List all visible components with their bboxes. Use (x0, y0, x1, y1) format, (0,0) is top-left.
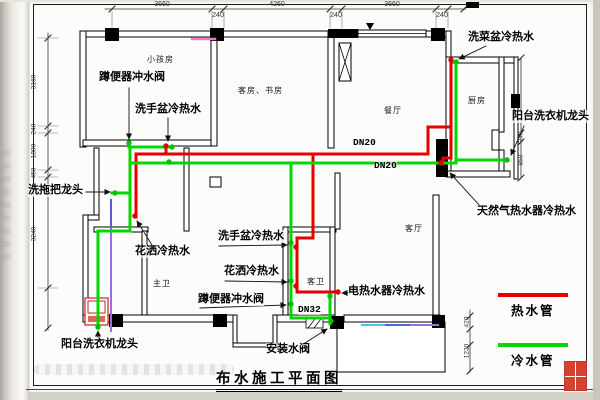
pipe-size-label: DN20 (353, 138, 376, 148)
fixture-label: 洗手盆冷热水 (135, 103, 201, 116)
hot-connection-dot (293, 283, 298, 288)
seal-cell (565, 377, 575, 391)
fixture-label: 洗菜盆冷热水 (468, 31, 534, 44)
drawing-title: 布水施工平面图 (216, 367, 342, 392)
room-label: 厨房 (468, 96, 486, 105)
wall (184, 148, 189, 231)
cold-connection-dot (504, 157, 509, 162)
cold-pipe-legend-line (498, 343, 568, 347)
fixture-label: 安装水阀 (266, 343, 310, 356)
fixture-label: 阳台洗衣机龙头 (512, 110, 589, 123)
wall (328, 31, 334, 148)
dimension-label: 3660 (384, 1, 400, 9)
wall-column (511, 94, 520, 108)
fixture-label: 洗手盆冷热水 (218, 230, 284, 243)
cold-connection-dot (288, 301, 293, 306)
wall (233, 315, 237, 347)
leader-line (305, 329, 327, 343)
hot-pipe-legend-label: 热水管 (511, 300, 555, 319)
hot-connection-dot (438, 160, 443, 165)
cold-connection-dot (288, 240, 293, 245)
fixture-label: 洗拖把龙头 (28, 184, 83, 197)
cold-connection-dot (169, 144, 174, 149)
wall-column (105, 28, 119, 41)
fixture-label: 花洒冷热水 (135, 245, 190, 258)
hot-connection-dot (448, 57, 453, 62)
wall-column (466, 2, 479, 8)
dimension-label: 850 (518, 145, 525, 175)
dimension-label: 3660 (154, 1, 170, 9)
room-label: 客房、书房 (238, 86, 283, 95)
fixture-label: 花洒冷热水 (224, 265, 279, 278)
wall-column (431, 28, 445, 41)
section-marker (366, 23, 374, 30)
dimension-label: 420 (464, 307, 471, 337)
wall (83, 140, 216, 146)
fixture-label: 蹲便器冲水阀 (198, 293, 264, 306)
hot-connection-dot (293, 244, 298, 249)
wall (492, 130, 499, 150)
wall-column (213, 314, 227, 327)
dimension-label: 4260 (269, 1, 285, 9)
seal-stamp (564, 361, 587, 391)
wall (337, 322, 445, 372)
room-label: 主卫 (153, 279, 171, 288)
wall (446, 171, 510, 177)
fixture-label: 阳台洗衣机龙头 (61, 338, 138, 351)
seal-cell (576, 362, 586, 376)
dimension-label: 3240 (31, 219, 38, 249)
room-label: 客卫 (307, 277, 325, 286)
leader-line (450, 173, 480, 206)
fixture-label: 蹲便器冲水阀 (99, 71, 165, 84)
wall (433, 195, 439, 320)
floor-plan-scene: 布水施工平面图 热水管 冷水管 小孩房客房、书房餐厅厨房客厅主卫客卫蹲便器冲水阀… (0, 0, 600, 400)
room-label: 客厅 (405, 224, 423, 233)
cold-pipe-legend-label: 冷水管 (511, 350, 555, 369)
cold-connection-dot (288, 278, 293, 283)
seal-cell (565, 362, 575, 376)
fixture-label: 天然气热水器冷热水 (477, 205, 576, 218)
wall-column (328, 29, 358, 38)
wall-column (432, 315, 445, 328)
wall (344, 315, 440, 322)
hot-connection-dot (163, 143, 168, 148)
cold-connection-dot (453, 59, 458, 64)
leader-line (219, 245, 287, 246)
pipe-size-label: DN32 (298, 305, 321, 315)
seal-cell (576, 377, 586, 391)
screenshot-root: 布水施工平面图 热水管 冷水管 小孩房客房、书房餐厅厨房客厅主卫客卫蹲便器冲水阀… (0, 0, 600, 400)
dimension-label: 1220 (464, 336, 471, 366)
hot-connection-dot (335, 289, 340, 294)
watermark (34, 364, 234, 375)
pipe-size-label: DN20 (374, 161, 397, 171)
dimension-label: 240 (330, 12, 342, 20)
wall (80, 31, 86, 147)
room-label: 小孩房 (147, 55, 174, 64)
wall (211, 31, 217, 146)
leader-line (225, 281, 287, 282)
cold-connection-dot (126, 140, 131, 145)
cold-connection-dot (112, 190, 117, 195)
wall (499, 57, 504, 132)
wall (94, 148, 99, 219)
cold-connection-dot (166, 159, 171, 164)
hot-connection-dot (132, 213, 137, 218)
room-label: 餐厅 (384, 106, 402, 115)
wall (210, 177, 221, 187)
cold-connection-dot (327, 293, 332, 298)
fixture-label: 电热水器冷热水 (348, 285, 425, 298)
cold-connection-dot (328, 318, 333, 323)
dimension-label: 3160 (31, 67, 38, 97)
watermark-vertical (2, 145, 11, 260)
cold-connection-dot (95, 324, 100, 329)
dimension-label: 240 (212, 12, 224, 20)
wall (335, 173, 340, 229)
dimension-label: 240 (436, 12, 448, 20)
hot-pipe-legend-line (498, 293, 568, 297)
